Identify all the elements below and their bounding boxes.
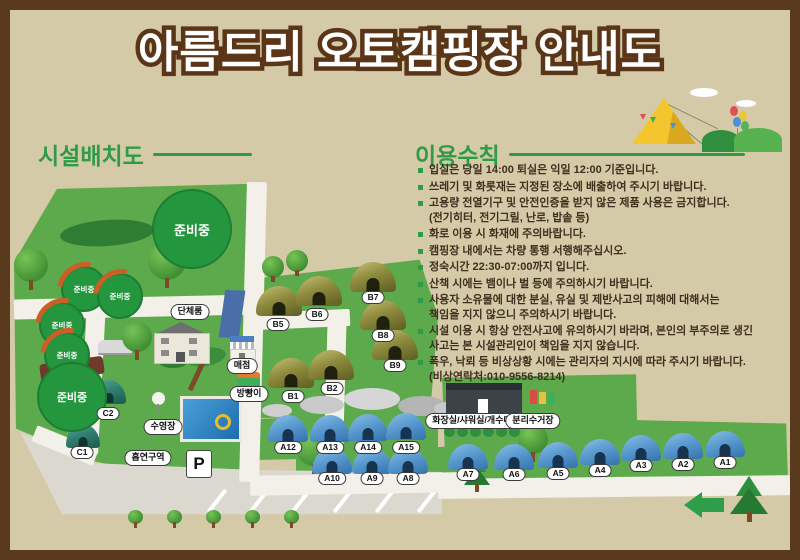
rule-text: 산책 시에는 뱀이나 벌 등에 주의하시기 바랍니다. [429,278,653,290]
campsite-tent [448,444,488,470]
campsite-tent [268,415,308,442]
bunting-icon [670,123,676,129]
campsite-tent [348,414,388,441]
rock [300,396,344,414]
rule-text: 쓰레기 및 화롯재는 지정된 장소에 배출하여 주시기 바랍니다. [429,181,706,193]
facility-map-heading-label: 시설배치도 [38,137,144,171]
bullet-icon [418,168,423,173]
campsite-label: B8 [372,329,395,342]
bullet-icon [418,329,423,334]
rock [344,388,400,410]
group-room-building [148,316,214,362]
rule-text: 정숙시간 22:30-07:00까지 입니다. [429,261,589,273]
campsite-label: A5 [547,467,570,480]
campsite-label: A2 [672,458,695,471]
campsite-tent [386,413,426,440]
campsite-label: A9 [361,472,384,485]
cloud-icon [736,100,756,107]
bunting-icon [660,120,666,126]
rule-text: 입실은 당일 14:00 퇴실은 익일 12:00 기준입니다. [429,164,658,176]
bush-icon [284,510,299,528]
campsite-tent [310,415,350,442]
campsite-label: A7 [457,468,480,481]
bunting-icon [650,117,656,123]
bullet-icon [418,249,423,254]
smoking-area-label: 흡연구역 [124,450,171,466]
campsite-tent [538,442,578,468]
campsite-label: C1 [71,446,94,459]
rule-note: 사고는 본 시설관리인이 책임을 지지 않습니다. [429,339,753,354]
pool-ring-icon [215,414,231,430]
rule-item: 사용자 소유물에 대한 분실, 유실 및 제반사고의 피해에 대해서는책임을 지… [418,293,792,322]
campsite-label: B7 [362,291,385,304]
facility-map-heading: 시설배치도 [38,137,252,171]
rule-item: 캠핑장 내에서는 차량 통행 서행해주십시오. [418,244,792,259]
pine-tree-icon [726,476,772,522]
rule-note: 책임을 지지 않으니 주의하시기 바랍니다. [429,308,720,323]
rule-item: 시설 이용 시 항상 안전사고에 유의하시기 바라며, 본인의 부주의로 생긴사… [418,324,792,353]
campsite-label: A12 [274,441,302,454]
campsite-label: B9 [384,359,407,372]
campsite-label: B2 [321,382,344,395]
rule-item: 정숙시간 22:30-07:00까지 입니다. [418,260,792,275]
snack-stand-label: 방빵이 [230,386,269,402]
umbrella-icon [152,392,165,414]
rule-item: 쓰레기 및 화롯재는 지정된 장소에 배출하여 주시기 바랍니다. [418,180,792,195]
bullet-icon [418,201,423,206]
campsite-tent [621,435,661,461]
balloon-icon [730,106,738,116]
bush-icon [206,510,221,528]
bush-icon [128,510,143,528]
restroom-building [446,383,522,417]
road [250,472,462,496]
rule-item: 산책 시에는 뱀이나 벌 등에 주의하시기 바랍니다. [418,277,792,292]
campsite-tent [350,262,396,292]
bullet-icon [418,298,423,303]
campsite-label: A3 [630,459,653,472]
campsite-tent [663,433,703,459]
campsite-tent [494,444,534,470]
bullet-icon [418,282,423,287]
bullet-icon [418,265,423,270]
store-label: 매점 [227,358,258,374]
cloud-icon [690,88,718,97]
parking-sign: P [186,450,212,478]
campsite-label: A15 [392,441,420,454]
camping-guide-poster: 아름드리 오토캠핑장 안내도 시설배치도 이용수칙 입실은 당일 14:00 퇴… [0,0,800,560]
campsite-tent [360,300,406,330]
tree-icon [262,256,284,282]
bush-icon [245,510,260,528]
campsite-tent [705,431,745,457]
rule-item: 입실은 당일 14:00 퇴실은 익일 12:00 기준입니다. [418,163,792,178]
bullet-icon [418,360,423,365]
campsite-label: A13 [316,441,344,454]
bullet-icon [418,232,423,237]
campsite-label: A8 [397,472,420,485]
campsite-tent [580,439,620,465]
rule-text: 사용자 소유물에 대한 분실, 유실 및 제반사고의 피해에 대해서는 [429,294,720,306]
campsite-label: B5 [267,318,290,331]
rule-text: 캠핑장 내에서는 차량 통행 서행해주십시오. [429,245,626,257]
rule-note: (전기히터, 전기그릴, 난로, 밥솥 등) [429,211,730,226]
campsite-label: A6 [503,468,526,481]
parking-sign-letter: P [193,454,204,474]
campsite-label: A10 [318,472,346,485]
tree-icon [286,250,308,276]
campsite-label: A4 [589,464,612,477]
bunting-icon [640,114,646,120]
campsite-label: B1 [282,390,305,403]
pool-label: 수영장 [144,419,183,435]
preparing-area-badge: 준비중 [152,189,232,269]
campsite-tent [296,276,342,306]
tree-icon [14,248,48,290]
pool [180,396,242,442]
group-room-label: 단체룸 [171,304,210,320]
heading-rule-line [509,153,745,156]
rule-text: 폭우, 낙뢰 등 비상상황 시에는 관리자의 지시에 따라 주시기 바랍니다. [429,356,746,368]
snack-stand [238,372,260,387]
recycling-label: 분리수거장 [505,413,560,429]
left-arrow-icon [684,492,726,518]
heading-rule-line [153,153,252,156]
campsite-label: B6 [306,308,329,321]
rule-note: (비상연락처:010-9556-8214) [429,370,746,385]
bullet-icon [418,185,423,190]
rule-text: 화로 이용 시 화재에 주의바랍니다. [429,228,586,240]
rule-text: 고용량 전열기구 및 안전인증을 받지 않은 제품 사용은 금지합니다. [429,197,730,209]
page-title: 아름드리 오토캠핑장 안내도 [0,16,800,80]
rules-list: 입실은 당일 14:00 퇴실은 익일 12:00 기준입니다. 쓰레기 및 화… [418,163,792,386]
rule-item: 폭우, 낙뢰 등 비상상황 시에는 관리자의 지시에 따라 주시기 바랍니다.(… [418,355,792,384]
rule-item: 화로 이용 시 화재에 주의바랍니다. [418,227,792,242]
rule-text: 시설 이용 시 항상 안전사고에 유의하시기 바라며, 본인의 부주의로 생긴 [429,325,753,337]
campsite-label: C2 [97,407,120,420]
balloon-icon [733,117,741,127]
campsite-label: A14 [354,441,382,454]
bush-icon [167,510,182,528]
rule-item: 고용량 전열기구 및 안전인증을 받지 않은 제품 사용은 금지합니다.(전기히… [418,196,792,225]
campsite-tent [308,350,354,380]
campsite-label: A1 [714,456,737,469]
recycling-bins [530,390,557,406]
